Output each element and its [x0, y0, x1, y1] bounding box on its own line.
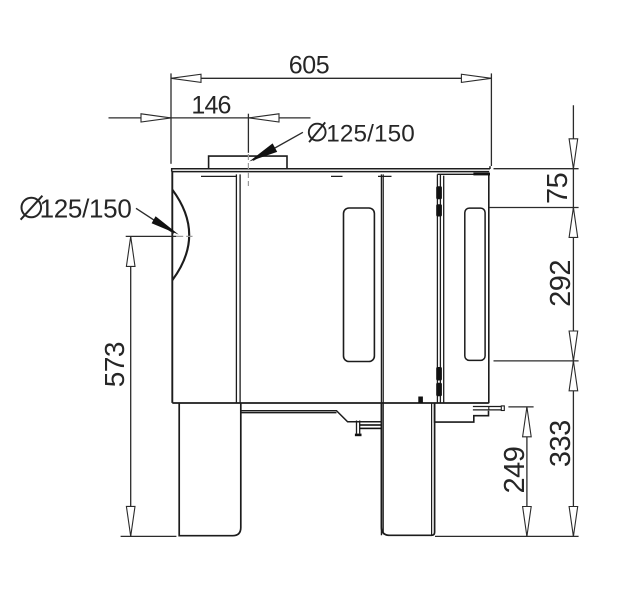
svg-text:125/150: 125/150: [326, 120, 415, 147]
svg-text:333: 333: [545, 420, 577, 467]
svg-text:249: 249: [499, 447, 531, 494]
svg-text:146: 146: [191, 91, 230, 119]
svg-text:573: 573: [99, 342, 130, 387]
svg-text:75: 75: [542, 173, 574, 204]
svg-text:605: 605: [289, 51, 330, 79]
svg-text:292: 292: [545, 260, 577, 307]
svg-text:125/150: 125/150: [40, 194, 132, 224]
